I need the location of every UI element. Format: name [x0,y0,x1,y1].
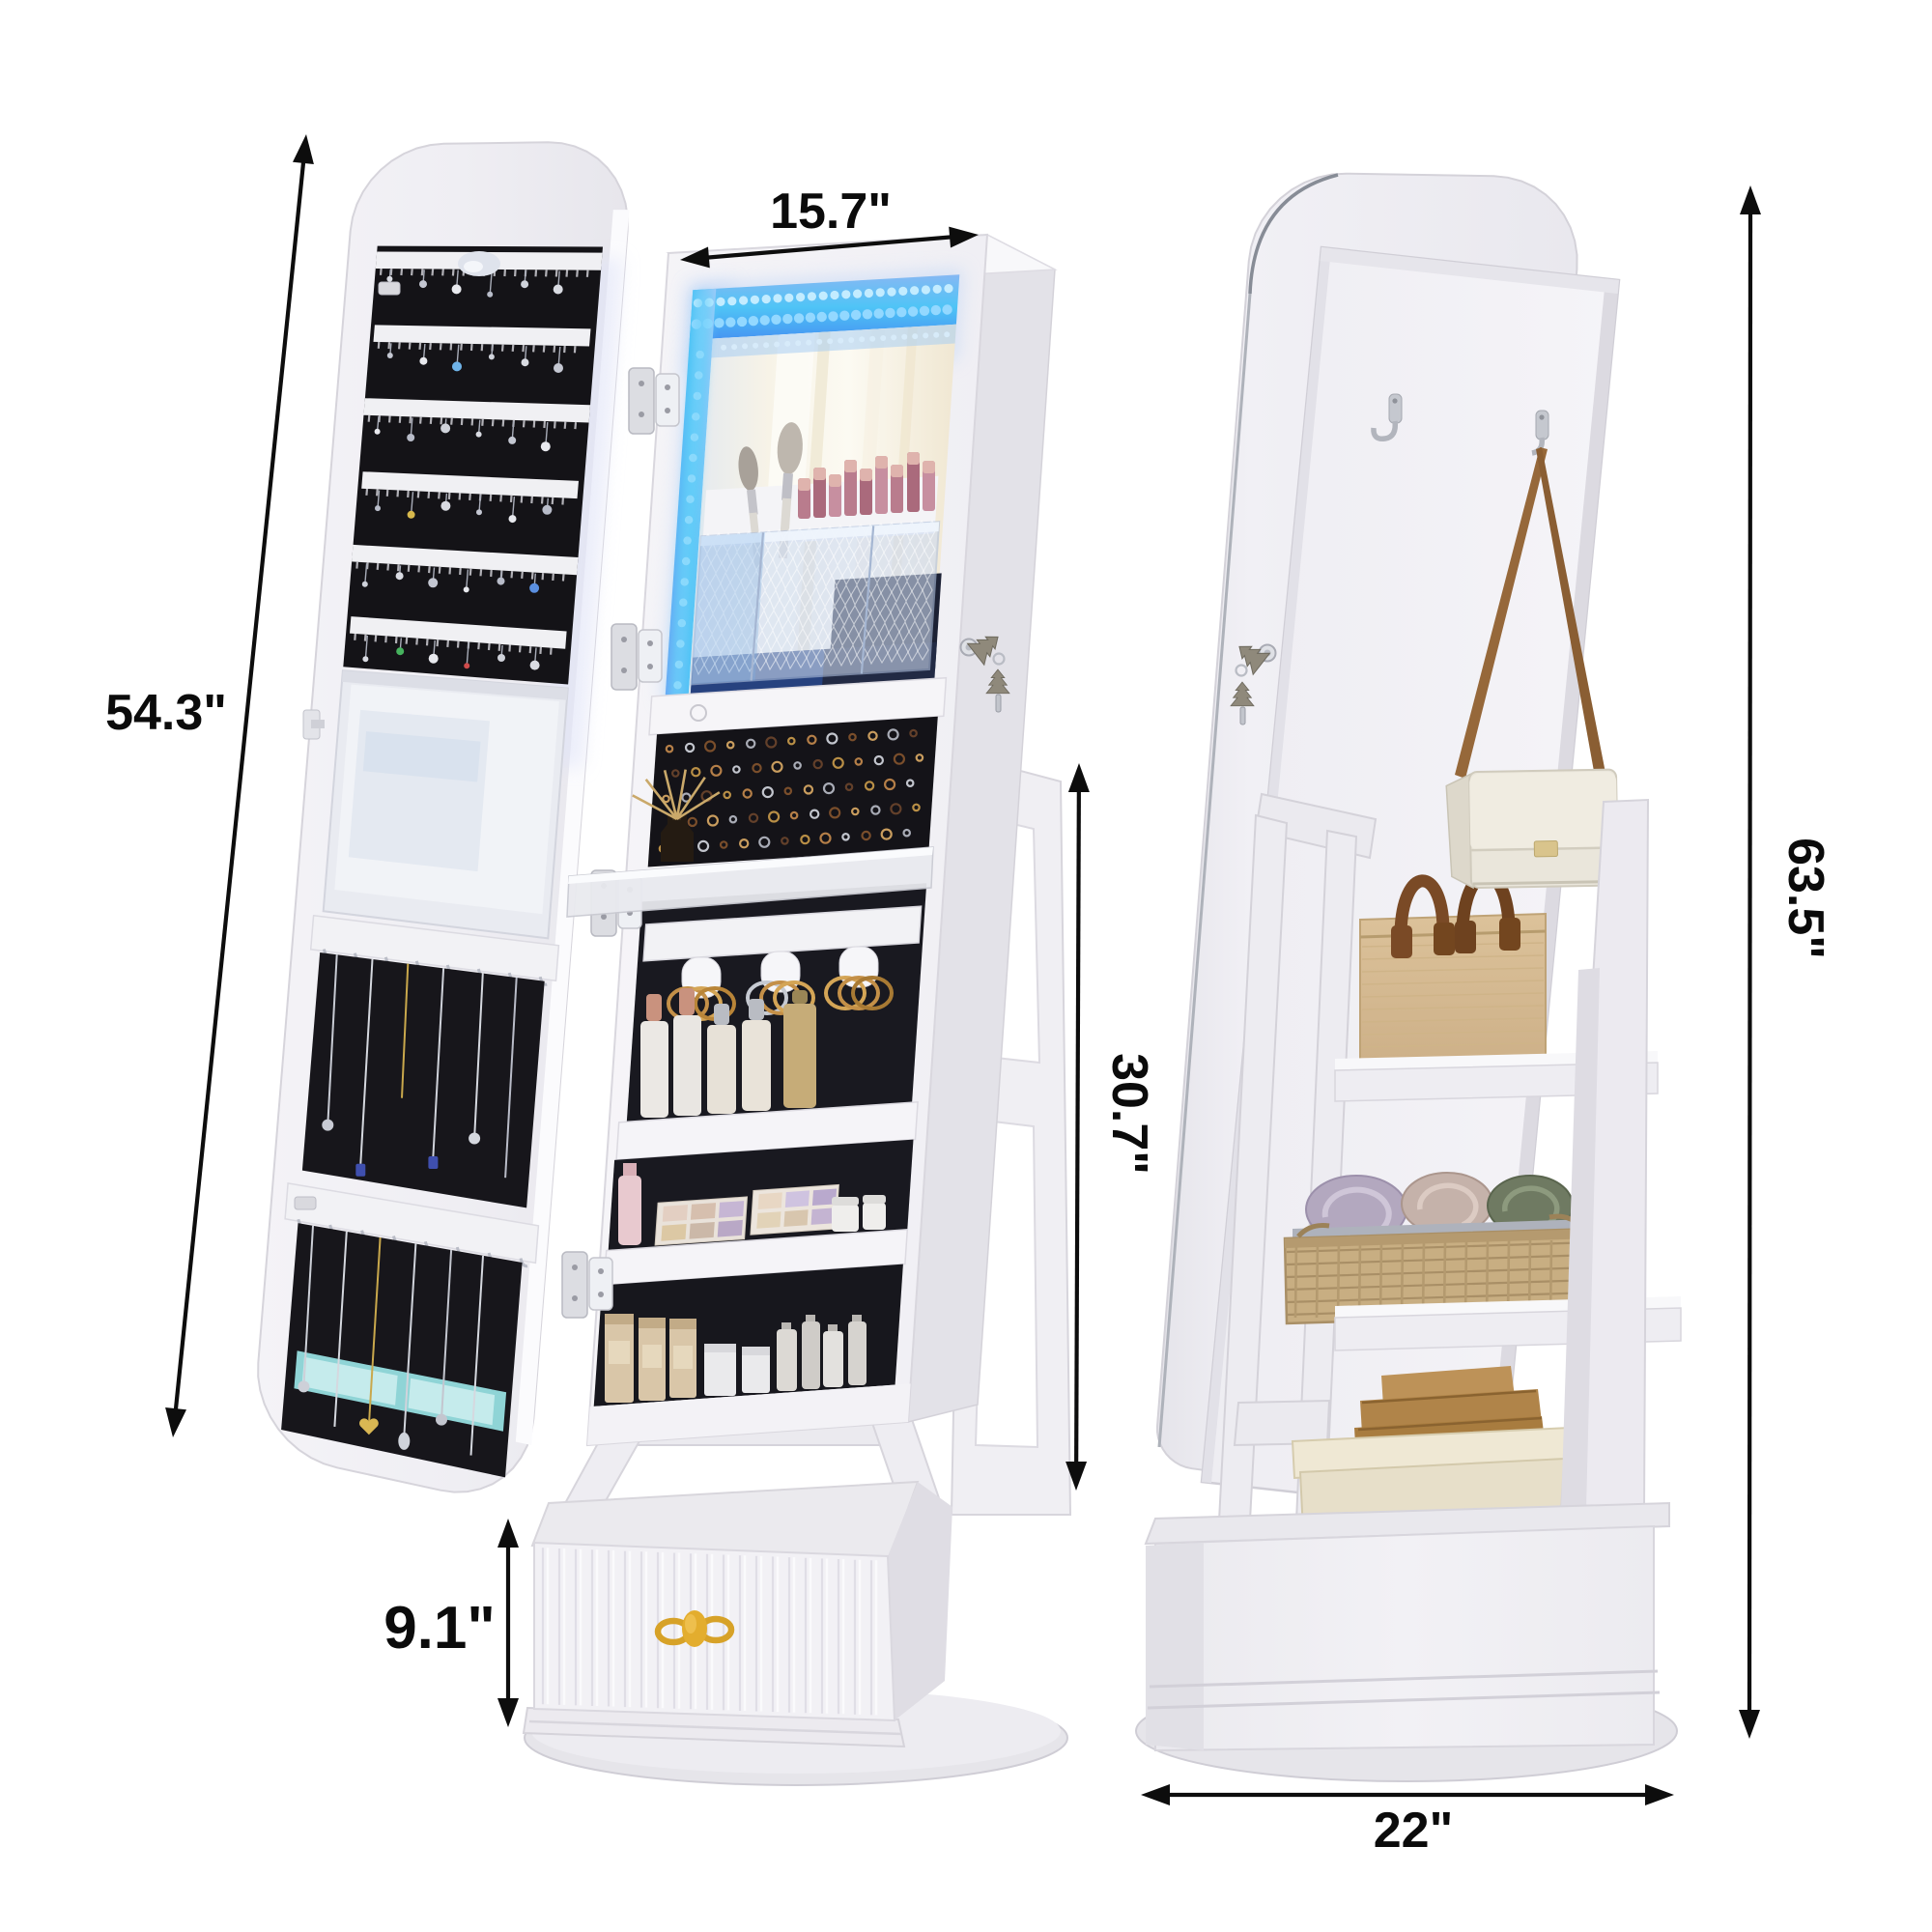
svg-text:30.7": 30.7" [1101,1053,1157,1175]
svg-text:22": 22" [1374,1803,1454,1859]
svg-text:54.3": 54.3" [105,685,227,741]
svg-text:63.5": 63.5" [1777,838,1833,959]
svg-text:15.7": 15.7" [770,184,892,240]
svg-text:9.1": 9.1" [384,1595,496,1662]
